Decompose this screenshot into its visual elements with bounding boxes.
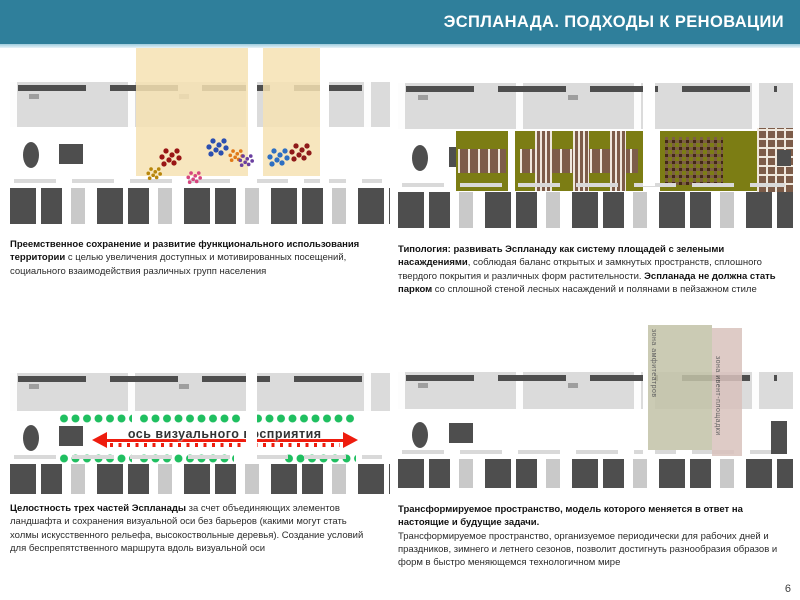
building-oval [412,145,428,171]
panel-visual-axis: ось визуального восприятия Целостность т… [10,330,390,592]
building-arm [771,421,787,454]
buildings-south-row [10,464,390,494]
panel-functional-continuity: Преемственное сохранение и развитие функ… [10,48,390,328]
building-theater [449,423,473,443]
highlight-band [263,48,320,176]
map-activity-clusters [10,48,390,235]
caption-lead: Трансформируемое пространство, модель ко… [398,503,790,530]
building-oval [23,425,39,451]
street-gap [643,71,655,186]
building-theater [59,144,83,164]
page-number: 6 [785,583,791,595]
esplanade-band: ось визуального восприятия [10,418,390,458]
slide-header-bar: ЭСПЛАНАДА. ПОДХОДЫ К РЕНОВАЦИИ [0,0,800,44]
axis-label: ось визуального восприятия [94,427,356,441]
esplanade-band [398,136,793,184]
caption-lead: Целостность трех частей Эспланады [10,503,186,514]
caption-visual-axis: Целостность трех частей Эспланады за сче… [10,502,376,555]
panel-typology: Типология: развивать Эспланаду как систе… [398,48,793,333]
building-arm [777,150,791,166]
caption-typology: Типология: развивать Эспланаду как систе… [398,243,790,296]
street-gap [246,363,257,459]
caption-transformable-space: Трансформируемое пространство, модель ко… [398,503,790,569]
building-theater [59,426,83,446]
visual-axis-arrow: ось визуального восприятия [94,431,356,451]
caption-body: Трансформируемое пространство, организуе… [398,530,790,570]
building-oval [412,422,428,448]
tree-row [253,413,356,424]
slide-title: ЭСПЛАНАДА. ПОДХОДЫ К РЕНОВАЦИИ [444,0,784,44]
tree-row [59,413,131,424]
buildings-south-row [10,188,390,224]
panel-transformable-space: зона амфитеатров зона ивент-площадки Тра… [398,325,793,598]
caption-body2: со сплошной стеной лесных насаждений и п… [432,284,757,295]
plaza-dot-grid [665,137,723,185]
buildings-south-row [398,459,793,488]
zone-band-event: зона ивент-площадки [712,328,742,456]
zone-band-label: зона амфитеатров [650,329,657,398]
caption-functional-continuity: Преемственное сохранение и развитие функ… [10,238,366,278]
plaza-crossing [458,149,506,173]
zone-band-label: зона ивент-площадки [714,356,721,436]
tree-row [139,413,242,424]
map-green-squares [398,48,793,240]
buildings-south-row [398,192,793,228]
buildings-north-row [398,83,793,129]
highlight-band [136,48,248,176]
map-visual-axis: ось визуального восприятия [10,344,390,504]
axis-ticks [110,443,340,447]
zone-band-amphitheatre: зона амфитеатров [648,325,712,450]
building-oval [23,142,39,168]
buildings-north-row [10,373,390,411]
street-gap [320,70,330,182]
